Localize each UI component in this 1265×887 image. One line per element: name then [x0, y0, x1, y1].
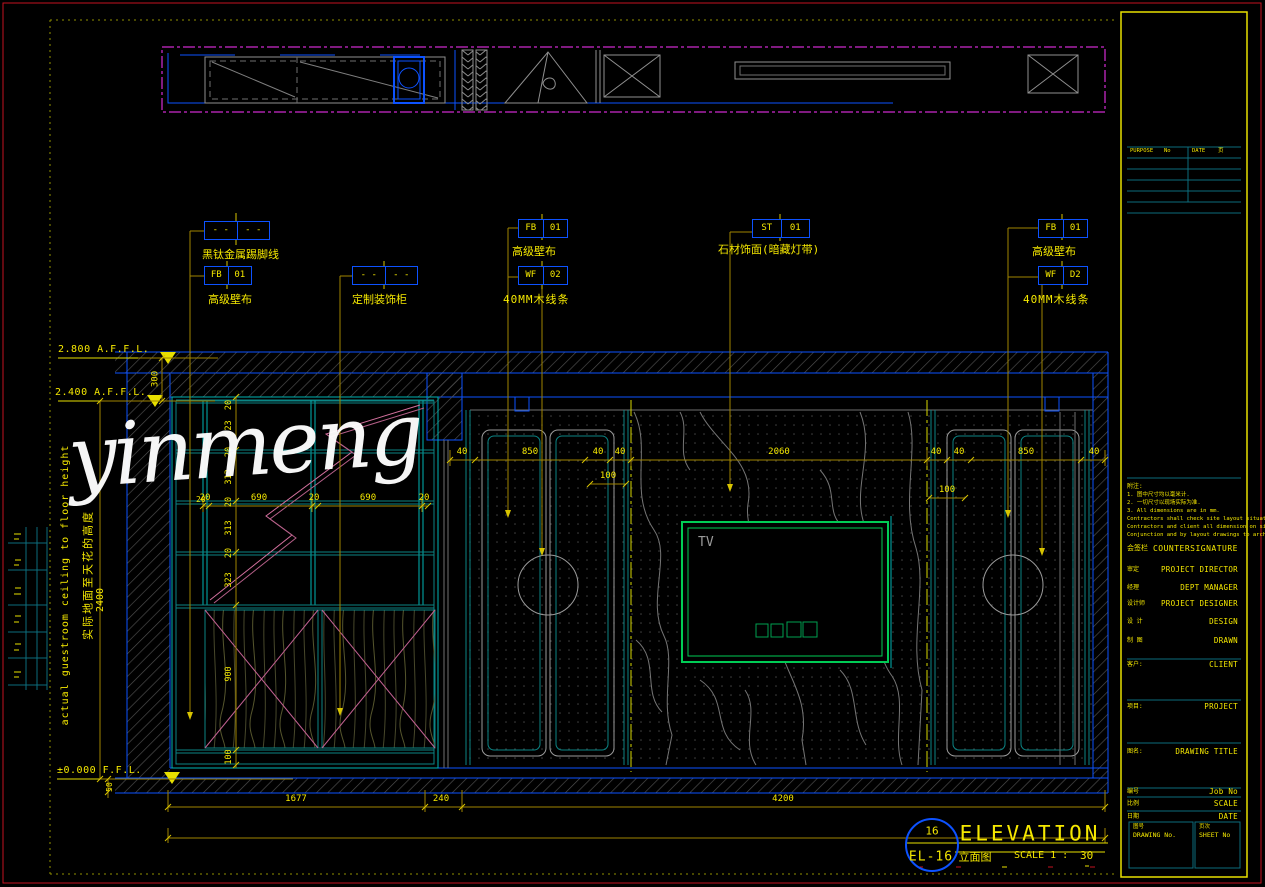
ceiling-step-left — [515, 397, 529, 411]
tag-cabinet-label: 定制装饰柜 — [352, 291, 407, 307]
level-dropped: 2.400 A.F.F.L. — [55, 388, 146, 398]
dim: 40 — [1089, 448, 1100, 457]
tag-skirting: - - - - — [204, 221, 270, 240]
dim: 40 — [931, 448, 942, 457]
countersign-cn: 会签栏 — [1127, 545, 1148, 552]
plan-strip — [168, 50, 1078, 110]
tag-fb-right: FB 01 — [1038, 219, 1088, 238]
tag-code: D2 — [1063, 267, 1088, 284]
tb-row-cn: 制 图 — [1127, 638, 1143, 644]
view-code: EL-16 — [909, 851, 953, 864]
cad-drawing-sheet: 2.800 A.F.F.L. 2.400 A.F.F.L. ±0.000 F.F… — [0, 0, 1265, 887]
sheet-no-label: SHEET No — [1199, 832, 1230, 839]
dim: 40 — [593, 448, 604, 457]
dim: 40 — [954, 448, 965, 457]
right-wall-hatch — [1093, 373, 1108, 778]
tag-code: - - — [237, 222, 270, 239]
tag-code: WF — [1039, 267, 1063, 284]
tb-note: Contractors shall check site layout situ… — [1127, 517, 1265, 523]
dim-bottom: 4200 — [772, 795, 794, 804]
dim-bottom: 1677 — [285, 795, 307, 804]
yellow-ticks — [1002, 866, 1089, 867]
dim: 100 — [225, 749, 234, 764]
tag-code: WF — [519, 267, 543, 284]
tag-code: 01 — [228, 267, 252, 284]
tag-code: 01 — [1063, 220, 1088, 237]
rev-header-no: No — [1164, 149, 1171, 155]
tb-row-cn: 客户: — [1127, 662, 1143, 668]
tag-code: FB — [519, 220, 543, 237]
dim: 850 — [1018, 448, 1034, 457]
tag-code: FB — [1039, 220, 1063, 237]
tb-row-en: PROJECT DIRECTOR — [1161, 566, 1238, 574]
dim: 690 — [360, 494, 376, 503]
tb-row-en: DATE — [1219, 813, 1238, 821]
dim-room-height: 2400 — [96, 588, 106, 612]
tb-note: Conjunction and by layout drawings to ar… — [1127, 533, 1265, 539]
drawing-no-cn: 图号 — [1133, 825, 1144, 831]
dim: 313 — [225, 520, 234, 535]
tb-row-en: DEPT MANAGER — [1180, 584, 1238, 592]
tb-row-en: DRAWING TITLE — [1175, 748, 1238, 756]
tag-code: 02 — [543, 267, 568, 284]
tb-row-cn: 项目: — [1127, 704, 1143, 710]
tag-fb-left: FB 01 — [204, 266, 252, 285]
tb-row-cn: 设 计 — [1127, 619, 1143, 625]
dim: 100 — [939, 486, 955, 495]
tag-wf-right-label: 40MM木线条 — [1023, 291, 1090, 307]
tag-stone: ST 01 — [752, 219, 810, 238]
dim: 20 — [225, 548, 234, 558]
side-note-cn: 实际地面至天花的高度 — [83, 510, 94, 640]
dim: 20 — [419, 494, 430, 503]
level-ceiling: 2.800 A.F.F.L. — [58, 345, 149, 355]
dim: 2060 — [768, 448, 790, 457]
tb-row-cn: 图名: — [1127, 749, 1143, 755]
tag-wf-mid-label: 40MM木线条 — [503, 291, 570, 307]
level-floor: ±0.000 F.F.L. — [57, 766, 142, 776]
tb-row-cn: 经理 — [1127, 585, 1139, 591]
tb-row-cn: 比例 — [1127, 801, 1139, 807]
dim: 20 — [225, 497, 234, 507]
countersign-en: COUNTERSIGNATURE — [1153, 545, 1238, 553]
rev-header-date: DATE — [1192, 149, 1205, 155]
tb-row-en: DRAWN — [1214, 637, 1238, 645]
tag-code: - - — [385, 267, 418, 284]
tag-code: - - — [353, 267, 385, 284]
tag-wf-right: WF D2 — [1038, 266, 1088, 285]
tag-code: - - — [205, 222, 237, 239]
rev-header-page: 页 — [1218, 149, 1224, 155]
view-number: 16 — [925, 826, 938, 837]
tb-note: 2. 一切尺寸以现场实际为准. — [1127, 501, 1201, 507]
rev-header-purpose: PURPOSE — [1130, 149, 1153, 155]
tb-note: 3. All dimensions are in mm. — [1127, 509, 1220, 515]
beam-hatch — [427, 373, 462, 440]
dim: 40 — [615, 448, 626, 457]
dim-base: 50 — [106, 782, 114, 792]
tb-note: Contractors and client all dimension on … — [1127, 525, 1265, 531]
tb-row-en: PROJECT — [1204, 703, 1238, 711]
dim-ceiling-gap: 300 — [152, 371, 161, 387]
drawing-no-label: DRAWING No. — [1133, 832, 1176, 839]
tag-fb-mid: FB 01 — [518, 219, 568, 238]
tv-label: TV — [698, 536, 714, 549]
tag-fb-right-label: 高级壁布 — [1032, 243, 1076, 259]
tag-wf-mid: WF 02 — [518, 266, 568, 285]
dim-bottom: 240 — [433, 795, 449, 804]
tb-row-cn: 编号 — [1127, 789, 1139, 795]
tag-code: 01 — [781, 220, 810, 237]
tag-code: FB — [205, 267, 228, 284]
dim: 40 — [457, 448, 468, 457]
tb-row-en: PROJECT DESIGNER — [1161, 600, 1238, 608]
dim: 850 — [522, 448, 538, 457]
tag-code: ST — [753, 220, 781, 237]
tag-skirting-label: 黑钛金属踢脚线 — [202, 246, 279, 262]
dim: 900 — [225, 666, 234, 681]
tb-row-cn: 设计师 — [1127, 601, 1145, 607]
scale-label: SCALE 1 : — [1014, 851, 1068, 861]
tag-stone-label: 石材饰面(暗藏灯带) — [718, 241, 819, 257]
tb-row-cn: 日期 — [1127, 814, 1139, 820]
tb-row-cn: 审定 — [1127, 567, 1139, 573]
dim: 20 — [309, 494, 320, 503]
ceiling-step-right — [1045, 397, 1059, 411]
tag-fb-mid-label: 高级壁布 — [512, 243, 556, 259]
dim: 100 — [600, 472, 616, 481]
dim: 323 — [225, 572, 234, 587]
sheet-no-cn: 页次 — [1199, 825, 1210, 831]
ceiling-slab-hatch — [115, 352, 1108, 373]
tb-row-en: CLIENT — [1209, 661, 1238, 669]
tb-note: 附注: — [1127, 484, 1143, 490]
tb-note: 1. 图中尺寸均以毫米计. — [1127, 493, 1190, 499]
tb-row-en: DESIGN — [1209, 618, 1238, 626]
tag-code: 01 — [543, 220, 568, 237]
floor-hatch — [115, 778, 1108, 793]
tb-row-en: Job No — [1209, 788, 1238, 796]
scale-value: 30 — [1080, 850, 1093, 861]
tag-fb-left-label: 高级壁布 — [208, 291, 252, 307]
tb-row-en: SCALE — [1214, 800, 1238, 808]
view-title: ELEVATION — [960, 824, 1101, 845]
tag-cabinet: - - - - — [352, 266, 418, 285]
left-margin-table — [8, 527, 47, 690]
view-title-cn: 立面图 — [959, 852, 992, 863]
